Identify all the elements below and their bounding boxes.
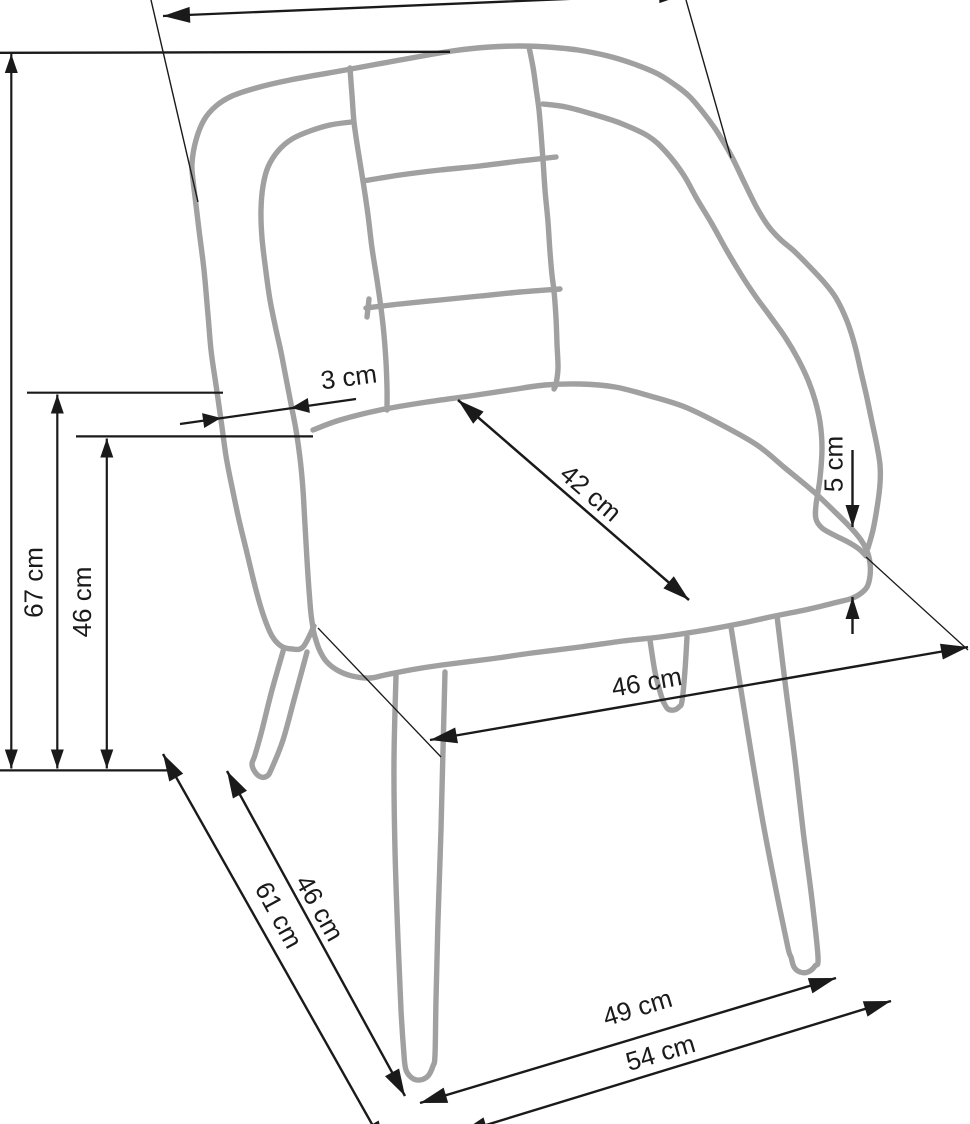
svg-text:67 cm: 67 cm	[18, 547, 48, 618]
svg-text:5 cm: 5 cm	[818, 436, 848, 492]
svg-text:46 cm: 46 cm	[67, 567, 97, 638]
